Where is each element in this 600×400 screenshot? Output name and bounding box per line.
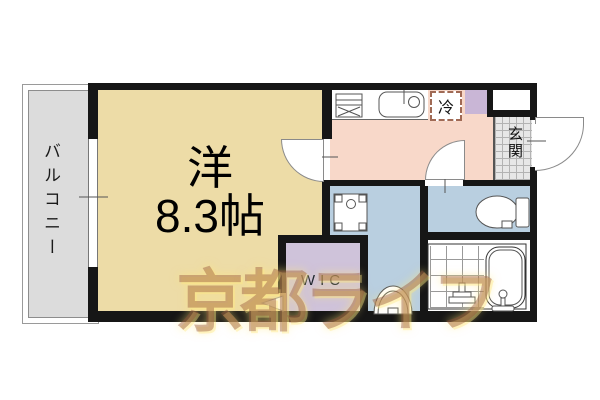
- floor-plan: 冷: [0, 0, 600, 400]
- watermark: 京都ライフ: [176, 246, 496, 345]
- genkan-label: 玄関: [504, 126, 525, 160]
- stove-icon: [336, 94, 362, 117]
- washing-machine-icon: [334, 194, 367, 231]
- living-room-size: 8.3帖: [98, 192, 322, 240]
- living-room-type: 洋: [98, 144, 322, 192]
- living-room-label: 洋 8.3帖: [98, 144, 322, 240]
- toilet-icon: [476, 196, 529, 228]
- sink-icon: [379, 90, 424, 117]
- balcony-label: バルコニー: [38, 142, 63, 262]
